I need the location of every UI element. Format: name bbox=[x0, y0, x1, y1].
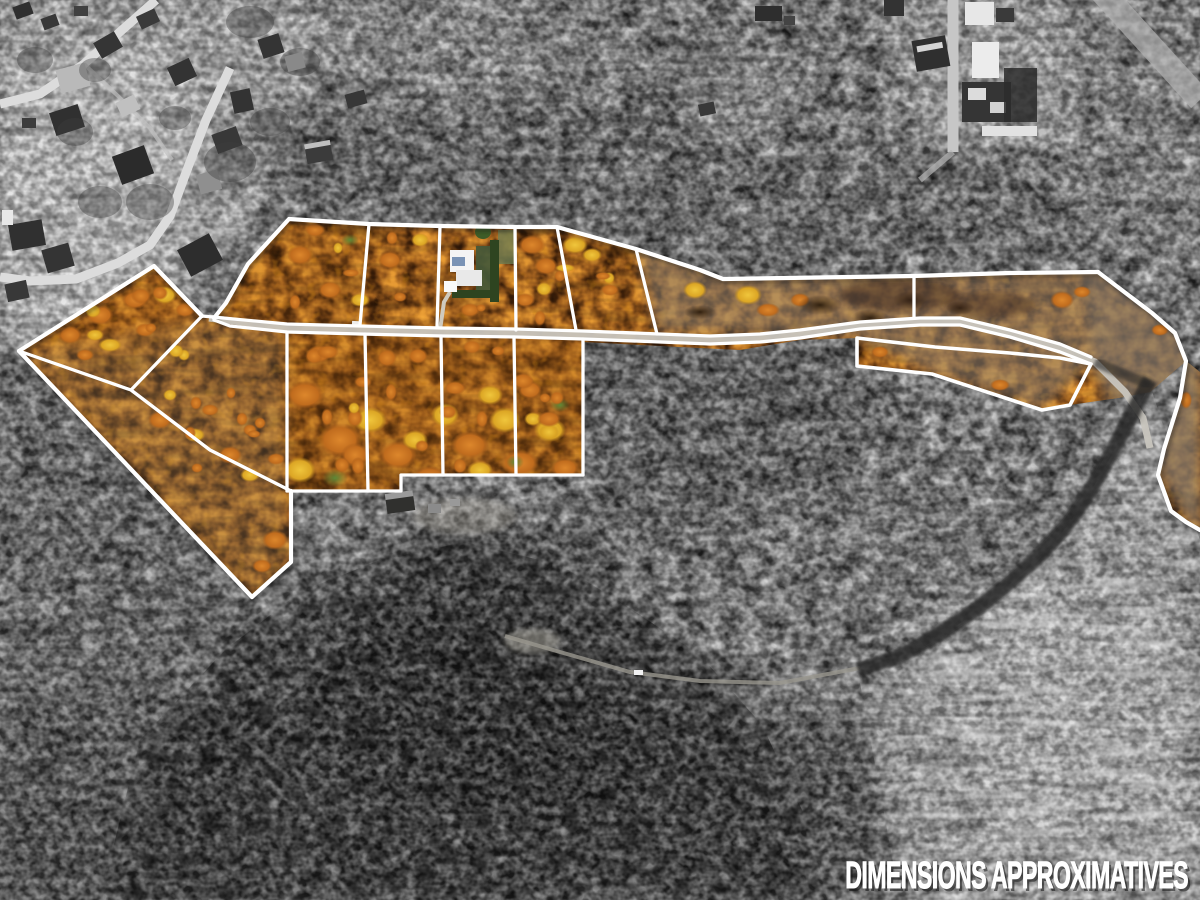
svg-text:DIMENSIONS APPROXIMATIVES: DIMENSIONS APPROXIMATIVES bbox=[845, 854, 1188, 896]
